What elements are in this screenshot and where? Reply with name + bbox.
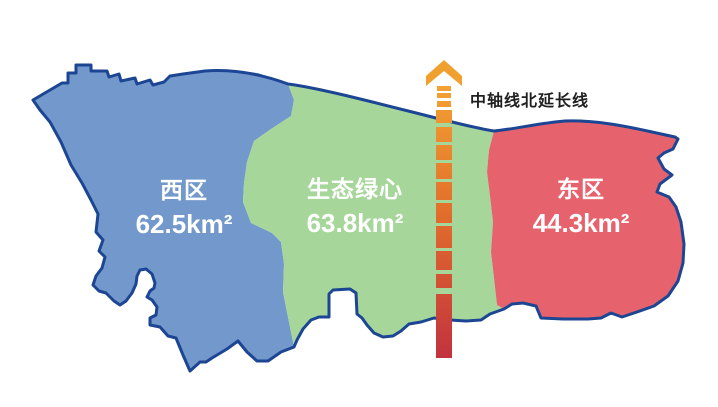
west-district-label: 西区 62.5km² xyxy=(136,179,233,237)
east-district-label: 东区 44.3km² xyxy=(533,178,630,236)
east-district-name: 东区 xyxy=(533,178,630,201)
green-heart-label: 生态绿心 63.8km² xyxy=(307,178,404,236)
west-district-area: 62.5km² xyxy=(136,211,233,237)
green-heart-name: 生态绿心 xyxy=(307,178,404,201)
green-heart-area: 63.8km² xyxy=(307,210,404,236)
west-district-name: 西区 xyxy=(136,179,233,202)
map-canvas: 西区 62.5km² 生态绿心 63.8km² 东区 44.3km² 中轴线北延… xyxy=(0,0,718,407)
east-district-area: 44.3km² xyxy=(533,210,630,236)
north-arrow-icon xyxy=(426,60,462,86)
central-axis-label: 中轴线北延长线 xyxy=(470,87,589,111)
